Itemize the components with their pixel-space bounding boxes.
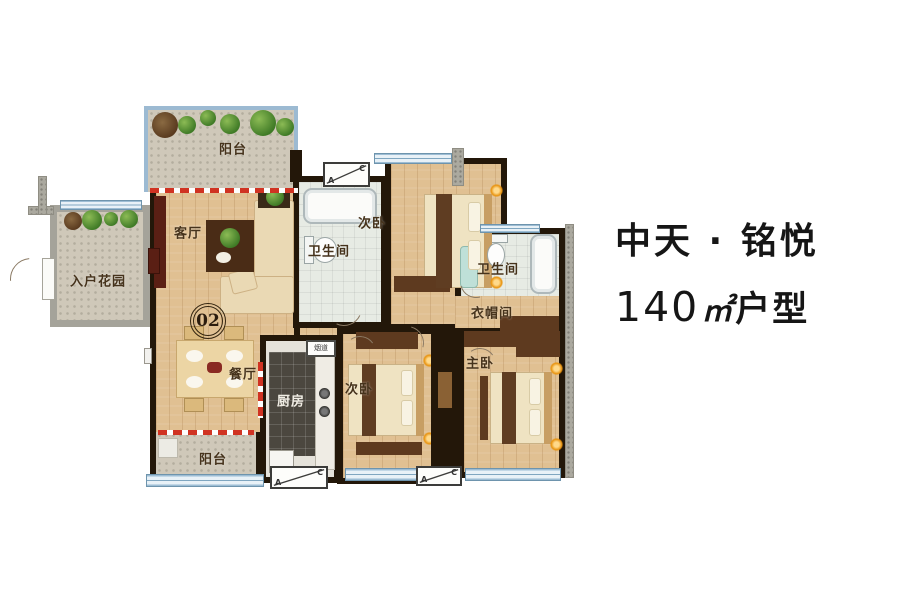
wall-niche	[144, 348, 152, 364]
tv-cabinet	[154, 196, 166, 288]
plant-icon	[178, 116, 196, 134]
pillow	[529, 409, 541, 436]
centerpiece	[207, 362, 222, 373]
garden-window	[60, 200, 142, 210]
plant-icon	[200, 110, 216, 126]
pillow	[401, 400, 413, 426]
room-label-bath1: 卫生间	[308, 241, 350, 260]
bed-headboard	[416, 364, 424, 436]
bathtub-icon	[530, 234, 557, 294]
room-label-closet: 衣帽间	[471, 303, 513, 322]
chair	[184, 398, 204, 412]
bedroom-bottom-window	[345, 468, 417, 481]
bedroom-top-window	[374, 153, 452, 164]
plant-icon	[250, 110, 276, 136]
pillow	[529, 378, 541, 405]
chair	[224, 326, 244, 340]
floorplan-page: 烟道	[0, 0, 900, 600]
planter-box	[158, 438, 178, 458]
ac-letter-a: A	[275, 479, 281, 487]
bed-headboard	[544, 372, 552, 444]
ac-unit: A C	[270, 466, 328, 489]
balcony-top-dashed	[150, 188, 298, 193]
plant-icon	[120, 210, 138, 228]
lamp-icon	[550, 438, 563, 451]
room-label-balcony-top: 阳台	[219, 139, 247, 158]
room-label-kitchen: 厨房	[277, 391, 305, 410]
garden-wall	[38, 176, 47, 215]
flue-label: 烟道	[308, 342, 334, 355]
stove-burner-icon	[319, 388, 330, 399]
stove-burner-icon	[319, 406, 330, 417]
room-label-dining: 餐厅	[229, 364, 257, 383]
lamp-icon	[550, 362, 563, 375]
unit-area-line: 140 ㎡ 户型	[615, 281, 819, 332]
flue-box: 烟道	[306, 340, 336, 357]
room-label-bedroom-top: 次卧	[358, 213, 386, 232]
title-block: 中天 · 铭悦 140 ㎡ 户型	[615, 212, 819, 332]
bed-runner	[436, 194, 452, 288]
ac-letter-c: C	[451, 469, 457, 477]
balcony-bottom-window	[146, 474, 264, 487]
bed	[490, 372, 552, 444]
place-setting	[186, 350, 203, 362]
ac-letter-a: A	[421, 476, 427, 484]
ac-unit: A C	[416, 466, 462, 486]
wardrobe	[464, 331, 524, 347]
room-label-living: 客厅	[174, 223, 202, 242]
area-unit: ㎡	[701, 285, 732, 330]
lamp-icon	[490, 184, 503, 197]
badge-ring	[193, 306, 223, 336]
room-label-master: 主卧	[466, 353, 494, 372]
plant-icon	[64, 212, 82, 230]
room-label-balcony-bottom: 阳台	[199, 449, 227, 468]
granite-outer-wall	[565, 224, 574, 478]
plant-icon	[220, 228, 240, 248]
place-setting	[186, 376, 203, 388]
floorplan: 烟道	[28, 100, 576, 500]
unit-number-badge: 02	[190, 303, 226, 339]
chair	[224, 398, 244, 412]
wall-niche	[438, 372, 452, 408]
ac-unit: A C	[323, 162, 370, 187]
room-label-entry-garden: 入户花园	[70, 271, 126, 290]
area-suffix: 户型	[735, 281, 809, 332]
area-value: 140	[615, 283, 699, 331]
bed-runner	[362, 364, 376, 436]
pillow	[401, 370, 413, 396]
plant-icon	[104, 212, 118, 226]
ac-letter-c: C	[317, 469, 323, 477]
plant-icon	[276, 118, 294, 136]
bath2-window	[480, 224, 540, 233]
ac-letter-c: C	[359, 165, 365, 173]
wall-stub	[290, 150, 302, 182]
bench	[480, 376, 488, 440]
plant-icon	[82, 210, 102, 230]
plant-icon	[220, 114, 240, 134]
bed-runner	[502, 372, 516, 444]
granite-pier	[452, 148, 464, 186]
room-label-bath2: 卫生间	[477, 259, 519, 278]
plant-icon	[152, 112, 178, 138]
kitchen-opening-dashed	[258, 362, 263, 418]
place-setting	[226, 350, 243, 362]
garden-door-panel	[148, 248, 160, 274]
project-name: 中天 · 铭悦	[615, 212, 819, 264]
bench	[356, 442, 422, 455]
dish	[216, 252, 231, 263]
wardrobe	[516, 331, 560, 357]
balcony-bottom-dashed	[158, 430, 254, 435]
master-window	[465, 468, 561, 481]
room-label-bedroom-bottom: 次卧	[345, 379, 373, 398]
ac-letter-a: A	[328, 177, 334, 185]
